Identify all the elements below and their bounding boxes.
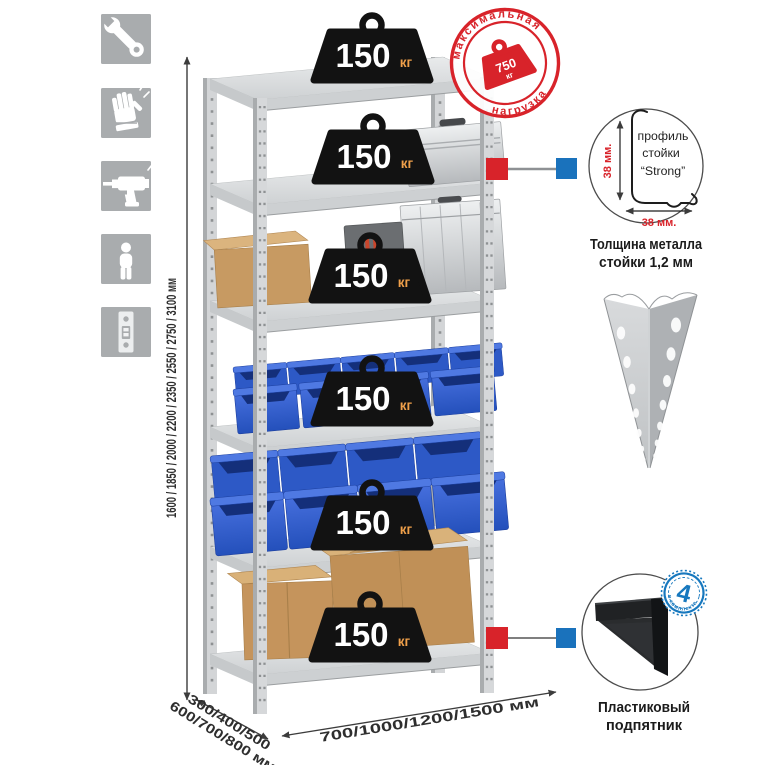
work-gloves-icon — [101, 84, 151, 138]
person-height-icon — [101, 234, 151, 284]
profile-callout-marker — [486, 158, 577, 180]
post-profile-detail: 38 мм. 38 мм. профиль стойки “Strong” То… — [589, 109, 703, 271]
infographic-canvas: 150 кг — [0, 0, 765, 765]
width-dimension: 700/1000/1200/1500 мм — [282, 692, 556, 745]
width-options-label: 700/1000/1200/1500 мм — [319, 694, 541, 745]
callout-marker-blue — [556, 158, 577, 179]
wrench-icon — [98, 11, 151, 64]
rack-post-front-left — [253, 98, 267, 714]
height-options-label: 1600 / 1850 / 2000 / 2200 / 2350 / 2550 … — [164, 278, 179, 518]
plastic-foot-detail: 4 в комплекте Пластиковый подпятник — [582, 566, 711, 734]
rack-post-back-left — [203, 78, 217, 694]
callout-marker-blue — [556, 628, 576, 648]
tools-icon-panel — [98, 11, 157, 357]
height-dimension: 1600 / 1850 / 2000 / 2200 / 2350 / 2550 … — [164, 57, 187, 700]
foot-caption-2: подпятник — [606, 717, 682, 734]
post-corner-photo — [604, 293, 697, 468]
depth-dimension: 300/400/500 600/700/800 мм — [167, 685, 287, 765]
profile-dim-horizontal: 38 мм. — [642, 217, 677, 229]
callout-marker-red — [486, 158, 508, 180]
shelving-rack — [203, 16, 510, 715]
callout-marker-red — [486, 627, 508, 649]
profile-label-3: “Strong” — [641, 164, 685, 178]
drill-icon — [101, 161, 157, 211]
profile-dim-vertical: 38 мм. — [602, 144, 614, 179]
foot-caption-1: Пластиковый — [598, 699, 690, 716]
profile-caption-1: Толщина металла — [590, 236, 703, 253]
foot-callout-marker — [486, 627, 576, 649]
max-load-stamp: максимальная нагрузка 750 кг — [436, 0, 574, 133]
profile-caption-2: стойки 1,2 мм — [599, 254, 693, 271]
rack-post-icon — [101, 307, 151, 357]
product-infographic: 150 кг — [0, 0, 765, 765]
profile-label-1: профиль — [638, 129, 689, 143]
profile-label-2: стойки — [642, 146, 680, 160]
